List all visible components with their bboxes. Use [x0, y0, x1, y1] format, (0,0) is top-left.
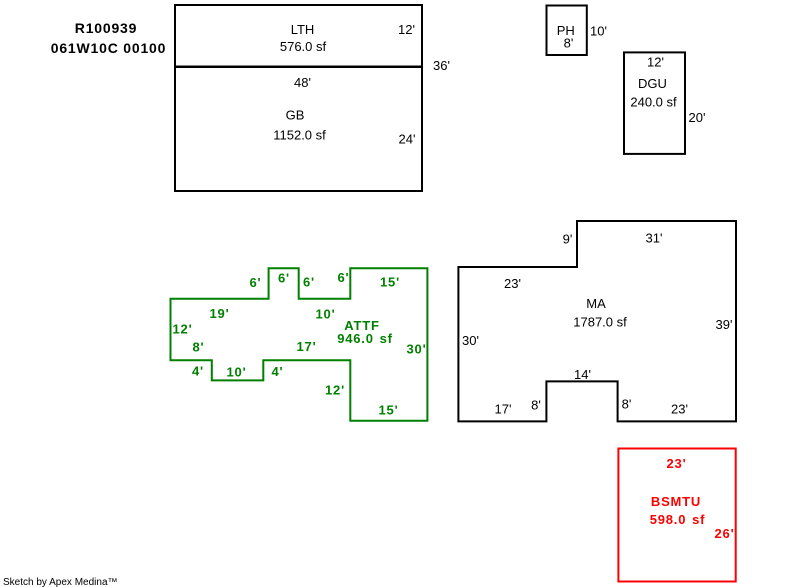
svg-text:6': 6' [278, 271, 290, 286]
svg-text:6': 6' [338, 270, 350, 285]
svg-text:DGU: DGU [638, 76, 667, 91]
svg-text:576.0 sf: 576.0 sf [280, 39, 327, 54]
svg-text:12': 12' [325, 383, 345, 398]
svg-text:30': 30' [407, 342, 427, 357]
svg-text:20': 20' [689, 110, 706, 125]
svg-text:19': 19' [210, 306, 230, 321]
svg-text:26': 26' [715, 526, 735, 541]
svg-text:36': 36' [433, 58, 450, 73]
svg-text:12': 12' [173, 322, 193, 337]
svg-text:598.0 sf: 598.0 sf [650, 512, 706, 527]
svg-text:39': 39' [716, 317, 733, 332]
svg-text:14': 14' [574, 367, 591, 382]
svg-text:30': 30' [462, 333, 479, 348]
svg-text:10': 10' [227, 365, 247, 380]
svg-text:48': 48' [294, 75, 311, 90]
svg-text:1787.0 sf: 1787.0 sf [573, 315, 627, 330]
svg-text:8': 8' [531, 398, 541, 413]
svg-text:24': 24' [399, 132, 416, 147]
svg-text:946.0 sf: 946.0 sf [337, 331, 393, 346]
svg-text:23': 23' [671, 402, 688, 417]
svg-text:MA: MA [586, 296, 606, 311]
svg-text:8': 8' [622, 397, 632, 412]
svg-text:1152.0 sf: 1152.0 sf [273, 127, 326, 142]
svg-text:8': 8' [193, 340, 205, 355]
svg-text:23': 23' [667, 456, 687, 471]
svg-text:4': 4' [272, 364, 284, 379]
svg-text:31': 31' [646, 231, 663, 246]
svg-text:8': 8' [564, 36, 574, 51]
svg-text:240.0 sf: 240.0 sf [630, 94, 677, 109]
svg-text:23': 23' [504, 276, 521, 291]
svg-text:15': 15' [380, 275, 400, 290]
svg-text:15': 15' [379, 403, 399, 418]
svg-text:LTH: LTH [291, 22, 315, 37]
svg-text:6': 6' [303, 275, 315, 290]
svg-text:12': 12' [647, 55, 664, 70]
svg-text:10': 10' [316, 307, 336, 322]
svg-text:Sketch by Apex Medina™: Sketch by Apex Medina™ [3, 577, 118, 587]
svg-text:6': 6' [250, 275, 262, 290]
svg-text:GB: GB [286, 108, 305, 123]
svg-text:R100939: R100939 [75, 20, 137, 36]
svg-text:4': 4' [192, 364, 204, 379]
svg-text:17': 17' [495, 402, 512, 417]
svg-text:BSMTU: BSMTU [651, 494, 701, 509]
svg-text:10': 10' [590, 24, 607, 39]
svg-text:9': 9' [563, 232, 573, 247]
svg-text:17': 17' [297, 339, 317, 354]
svg-text:061W10C 00100: 061W10C 00100 [51, 40, 166, 56]
svg-text:12': 12' [398, 22, 415, 37]
